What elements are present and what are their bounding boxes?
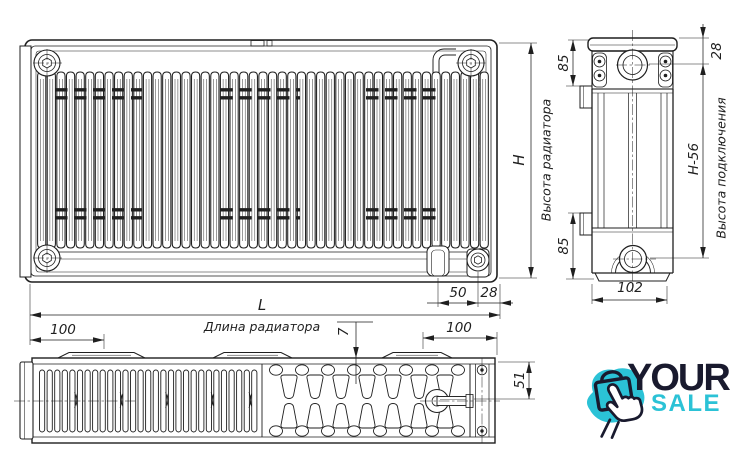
- radiator-top-view: [14, 353, 500, 444]
- label-connection-height: Высота подключения: [714, 97, 729, 239]
- dim-H-minus-56: H-56: [686, 143, 702, 175]
- radiator-front-view: [20, 40, 497, 282]
- radiator-drawing-canvas: H Высота радиатора 85 85 28 H-56 Высота …: [0, 0, 740, 465]
- dim-51: 51: [512, 371, 528, 388]
- mounting-tab-bottom: [580, 213, 592, 235]
- wall-bracket-rail: [20, 46, 31, 277]
- label-length-radiator: Длина радиатора: [203, 319, 320, 334]
- logo-text-sale: SALE: [651, 392, 721, 416]
- dim-100-left: 100: [50, 322, 76, 338]
- dim-100-right: 100: [446, 320, 472, 336]
- dim-L: L: [258, 296, 266, 314]
- dim-50: 50: [449, 285, 466, 301]
- mounting-bosses: [58, 353, 452, 359]
- label-height-radiator: Высота радиатора: [539, 99, 554, 221]
- yoursale-logo: YOUR SALE: [581, 358, 740, 438]
- dim-28-side: 28: [709, 42, 725, 59]
- bottom-connection-stub: [427, 246, 449, 276]
- left-end-cap: [20, 362, 33, 439]
- radiator-side-view: [580, 30, 677, 292]
- dim-85-bottom: 85: [556, 237, 572, 254]
- dim-28-front: 28: [480, 285, 497, 301]
- dim-7: 7: [336, 327, 352, 336]
- dim-H: H: [510, 154, 528, 165]
- mounting-tab-top: [580, 86, 592, 108]
- dim-102: 102: [617, 280, 643, 296]
- dim-85-top: 85: [556, 54, 572, 71]
